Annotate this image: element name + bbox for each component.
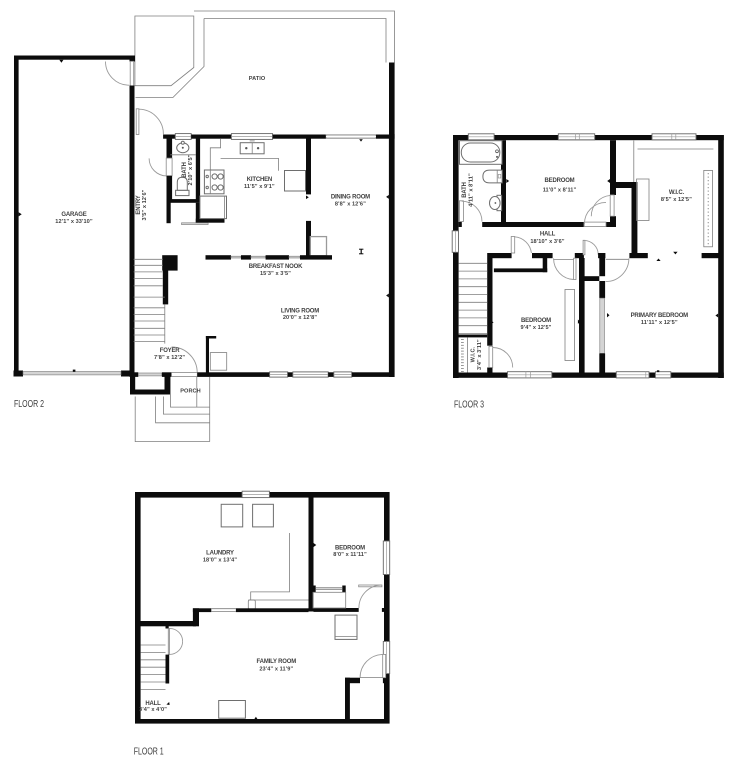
svg-text:4’11” x 8’11”: 4’11” x 8’11”: [468, 173, 474, 207]
svg-text:DINING ROOM: DINING ROOM: [331, 195, 370, 201]
svg-text:BEDROOM: BEDROOM: [335, 546, 365, 552]
svg-text:18’10” x 3’6”: 18’10” x 3’6”: [530, 239, 564, 245]
svg-text:7’8” x 12’2”: 7’8” x 12’2”: [154, 355, 185, 361]
svg-text:PATIO: PATIO: [249, 76, 266, 82]
svg-text:FLOOR 2: FLOOR 2: [14, 399, 44, 410]
svg-text:BEDROOM: BEDROOM: [521, 318, 551, 324]
svg-text:20’0” x 12’8”: 20’0” x 12’8”: [283, 315, 317, 321]
svg-text:FAMILY ROOM: FAMILY ROOM: [257, 659, 297, 665]
svg-text:18’0” x 13’4”: 18’0” x 13’4”: [203, 558, 237, 564]
svg-text:FLOOR 1: FLOOR 1: [134, 747, 164, 758]
svg-text:BEDROOM: BEDROOM: [545, 178, 575, 184]
svg-text:23’4” x 11’9”: 23’4” x 11’9”: [259, 666, 293, 672]
svg-text:PORCH: PORCH: [180, 389, 200, 395]
svg-text:HALL: HALL: [540, 232, 556, 238]
svg-text:8’0” x 11’11”: 8’0” x 11’11”: [333, 552, 367, 558]
svg-text:LAUNDRY: LAUNDRY: [206, 550, 234, 556]
svg-text:LIVING ROOM: LIVING ROOM: [281, 308, 319, 314]
svg-text:W.I.C.: W.I.C.: [669, 190, 685, 196]
svg-text:15’3” x 3’5”: 15’3” x 3’5”: [260, 271, 291, 277]
svg-text:BATH: BATH: [462, 182, 468, 197]
svg-text:2’10” x 6’5”: 2’10” x 6’5”: [188, 154, 194, 185]
svg-text:3’4” x 4’0”: 3’4” x 4’0”: [139, 707, 167, 713]
svg-text:FLOOR 3: FLOOR 3: [454, 400, 484, 411]
svg-text:FOYER: FOYER: [160, 348, 181, 354]
svg-text:ENTRY: ENTRY: [136, 195, 142, 214]
svg-text:11’0” x 8’11”: 11’0” x 8’11”: [543, 187, 577, 193]
svg-text:3’4” x 3’11”: 3’4” x 3’11”: [477, 339, 483, 370]
svg-text:11’5” x 9’1”: 11’5” x 9’1”: [244, 184, 275, 190]
svg-text:KITCHEN: KITCHEN: [247, 177, 272, 183]
svg-text:W.I.C.: W.I.C.: [470, 346, 476, 362]
svg-text:8’5” x 12’5”: 8’5” x 12’5”: [661, 197, 692, 203]
svg-text:PRIMARY BEDROOM: PRIMARY BEDROOM: [631, 313, 689, 319]
svg-text:3’5” x 12’6”: 3’5” x 12’6”: [142, 189, 148, 220]
svg-text:GARAGE: GARAGE: [61, 212, 86, 218]
svg-text:8’8” x 12’6”: 8’8” x 12’6”: [335, 201, 366, 207]
svg-text:9’4” x 12’5”: 9’4” x 12’5”: [520, 325, 551, 331]
svg-text:12’1” x 33’10”: 12’1” x 33’10”: [55, 219, 93, 225]
svg-text:11’11” x 12’5”: 11’11” x 12’5”: [641, 320, 678, 326]
svg-text:BREAKFAST NOOK: BREAKFAST NOOK: [249, 264, 303, 270]
